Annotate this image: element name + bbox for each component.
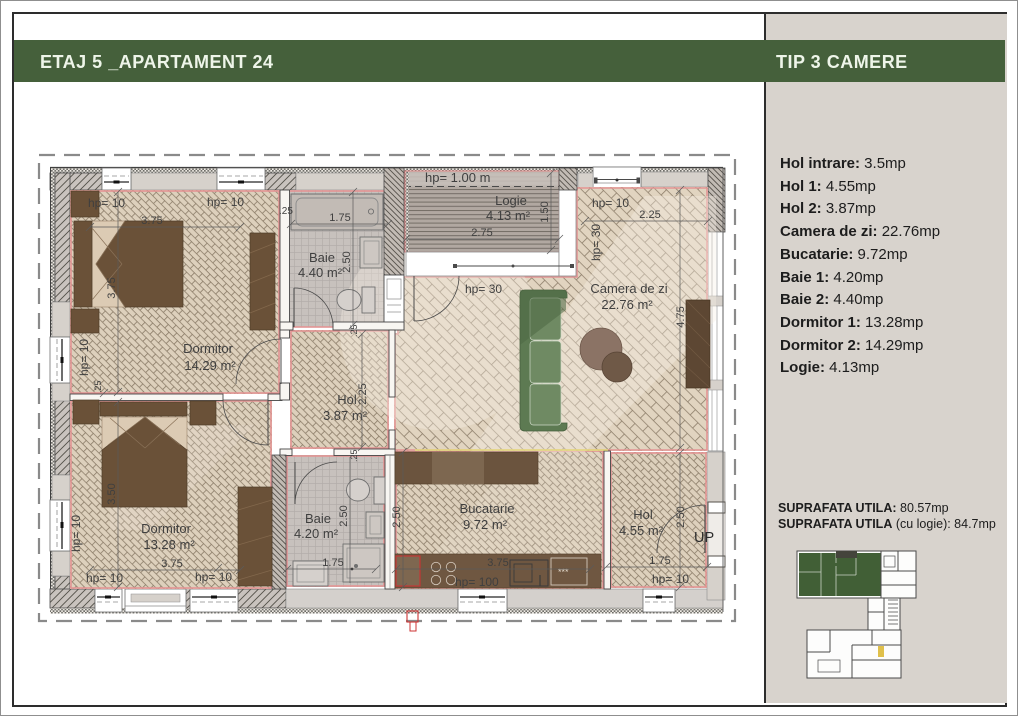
svg-text:hp= 10: hp= 10	[207, 195, 244, 209]
svg-text:3.50: 3.50	[106, 483, 118, 504]
svg-text:1.75: 1.75	[649, 555, 670, 567]
svg-text:Baie: Baie	[305, 511, 331, 526]
svg-text:Baie: Baie	[309, 250, 335, 265]
svg-text:hp= 30: hp= 30	[589, 224, 603, 261]
svg-text:2.25: 2.25	[357, 383, 369, 404]
svg-text:.25: .25	[279, 206, 293, 217]
svg-text:UP: UP	[694, 530, 714, 546]
svg-text:13.28 m²: 13.28 m²	[143, 537, 195, 552]
svg-text:hp= 10: hp= 10	[88, 196, 125, 210]
svg-text:4.20 m²: 4.20 m²	[294, 526, 339, 541]
svg-text:3.87 m²: 3.87 m²	[323, 408, 368, 423]
svg-text:1.75: 1.75	[329, 212, 350, 224]
svg-text:hp= 100: hp= 100	[455, 575, 499, 589]
svg-text:2.75: 2.75	[471, 227, 492, 239]
svg-text:Hol: Hol	[633, 507, 653, 522]
svg-text:hp= 10: hp= 10	[592, 196, 629, 210]
svg-text:2.50: 2.50	[391, 506, 403, 527]
svg-text:2.25: 2.25	[639, 209, 660, 221]
svg-text:4.13 m²: 4.13 m²	[486, 208, 531, 223]
svg-text:.25: .25	[93, 380, 103, 393]
svg-text:4.75: 4.75	[675, 306, 687, 327]
svg-text:Bucatarie: Bucatarie	[460, 501, 515, 516]
svg-text:3.75: 3.75	[141, 215, 162, 227]
svg-text:3.75: 3.75	[106, 277, 118, 298]
svg-text:4.55 m²: 4.55 m²	[619, 523, 664, 538]
svg-text:***: ***	[558, 567, 569, 577]
svg-text:3.75: 3.75	[487, 557, 508, 569]
svg-text:.25: .25	[349, 324, 359, 337]
svg-text:14.29 m²: 14.29 m²	[184, 358, 236, 373]
svg-text:9.72 m²: 9.72 m²	[463, 517, 508, 532]
svg-text:Dormitor: Dormitor	[141, 521, 192, 536]
svg-text:Logie: Logie	[495, 193, 527, 208]
svg-text:3.75: 3.75	[161, 558, 182, 570]
svg-text:hp= 10: hp= 10	[195, 570, 232, 584]
svg-text:4.40 m²: 4.40 m²	[298, 265, 343, 280]
svg-text:hp= 10: hp= 10	[77, 339, 91, 376]
svg-text:hp= 10: hp= 10	[69, 515, 83, 552]
svg-text:1.75: 1.75	[322, 557, 343, 569]
svg-text:1.50: 1.50	[539, 201, 551, 222]
svg-text:Camera de zi: Camera de zi	[590, 281, 667, 296]
svg-text:hp= 1.00 m: hp= 1.00 m	[425, 170, 490, 185]
svg-text:2.50: 2.50	[675, 506, 687, 527]
svg-text:2.50: 2.50	[338, 505, 350, 526]
svg-text:Hol: Hol	[337, 392, 357, 407]
svg-text:hp= 30: hp= 30	[465, 282, 502, 296]
svg-text:hp= 10: hp= 10	[652, 572, 689, 586]
svg-text:.25: .25	[349, 449, 359, 462]
svg-text:22.76 m²: 22.76 m²	[601, 297, 653, 312]
svg-text:2.50: 2.50	[341, 251, 353, 272]
svg-text:Dormitor: Dormitor	[183, 341, 234, 356]
